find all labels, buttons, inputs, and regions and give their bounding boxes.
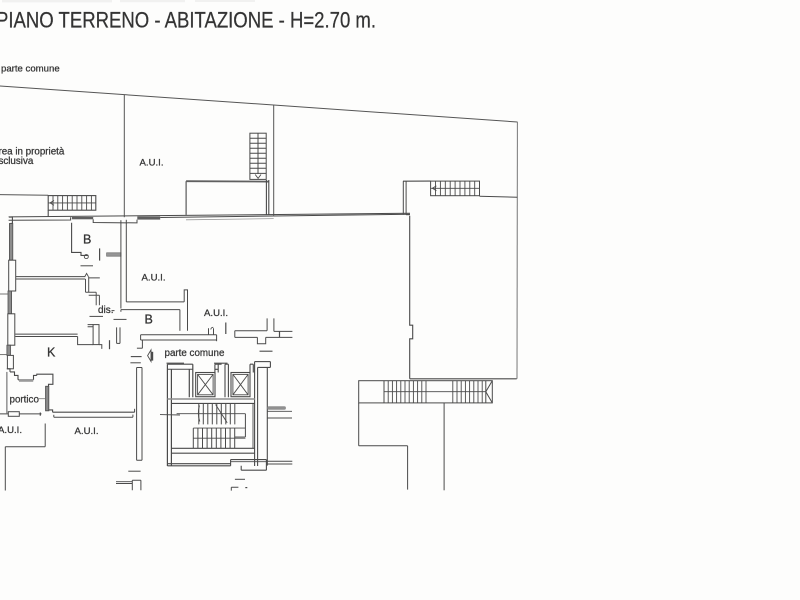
svg-text:PIANO TERRENO - ABITAZIONE - H: PIANO TERRENO - ABITAZIONE - H=2.70 m. <box>0 8 376 33</box>
svg-text:B: B <box>83 233 91 247</box>
svg-text:parte comune: parte comune <box>1 64 60 75</box>
svg-text:esclusiva: esclusiva <box>0 156 34 167</box>
svg-text:A.U.I.: A.U.I. <box>0 425 22 436</box>
svg-text:A.U.I.: A.U.I. <box>142 273 166 284</box>
svg-text:K: K <box>47 346 56 360</box>
svg-text:B: B <box>145 313 153 327</box>
svg-text:parte comune: parte comune <box>165 348 225 359</box>
svg-text:portico: portico <box>10 395 40 406</box>
svg-text:A.U.I.: A.U.I. <box>140 158 164 169</box>
svg-text:A.U.I.: A.U.I. <box>204 308 228 319</box>
svg-text:A.U.I.: A.U.I. <box>75 426 99 437</box>
svg-text:dis.: dis. <box>98 305 114 316</box>
